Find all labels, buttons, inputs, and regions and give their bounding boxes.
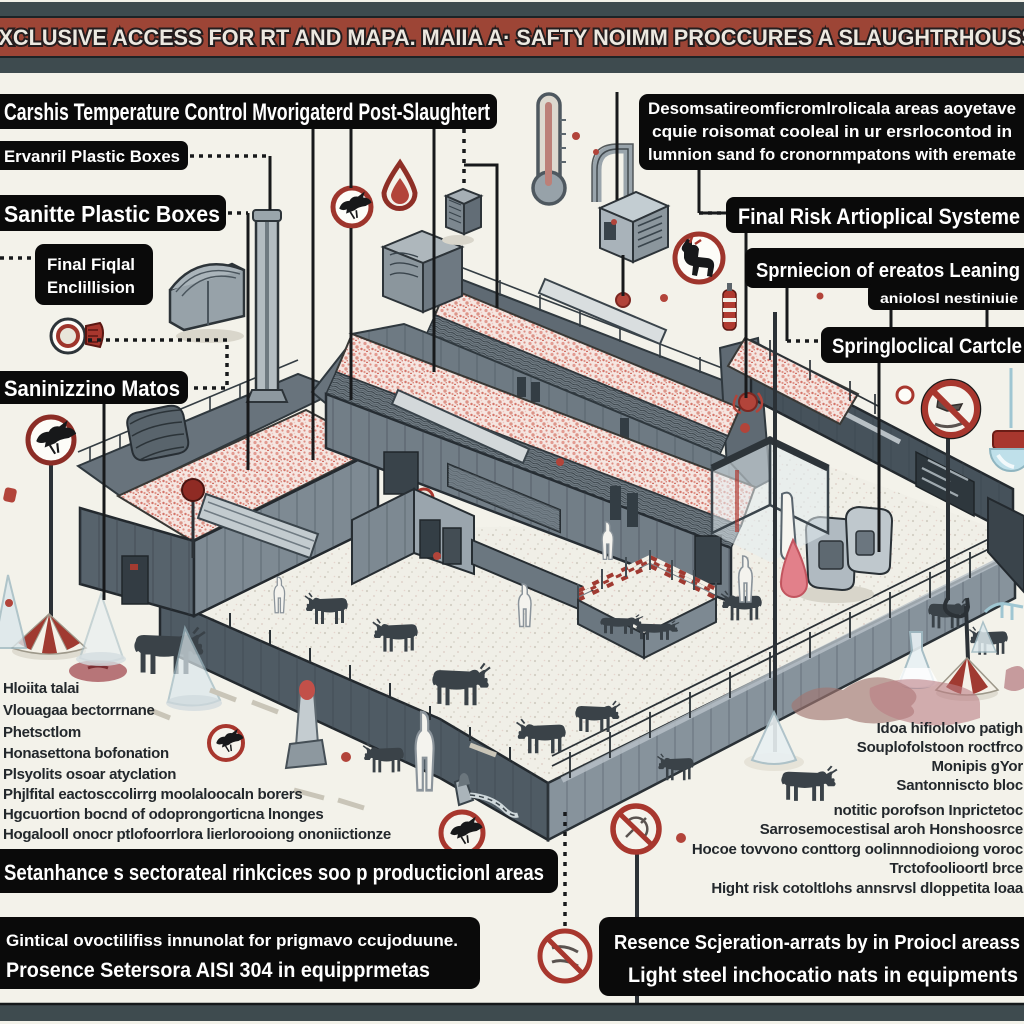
svg-text:Light steel inchocatio nats in: Light steel inchocatio nats in equipment… (628, 964, 1018, 987)
svg-text:Resence Scjeration-arrats by i: Resence Scjeration-arrats by in Proiocl … (614, 932, 1020, 954)
svg-text:Monipis gYor: Monipis gYor (932, 758, 1024, 775)
svg-text:Hogalooll onocr ptlofoorrlora: Hogalooll onocr ptlofoorrlora lierlorooi… (3, 826, 391, 843)
svg-text:Setanhance s sectorateal rinkc: Setanhance s sectorateal rinkcices soo p… (4, 860, 544, 885)
svg-text:Desomsatireomficromlrolicala a: Desomsatireomficromlrolicala areas aoyet… (648, 100, 1016, 118)
svg-text:Final Risk Artioplical Systeme: Final Risk Artioplical Systeme (738, 204, 1020, 229)
svg-text:aniolosl nestiniuie: aniolosl nestiniuie (880, 291, 1019, 306)
svg-text:Sanitte Plastic Boxes: Sanitte Plastic Boxes (4, 201, 220, 227)
svg-text:Vlouagaa bectorrnane: Vlouagaa bectorrnane (3, 702, 155, 719)
svg-text:Sprniecion of ereatos Leaning: Sprniecion of ereatos Leaning (756, 260, 1020, 282)
svg-text:Ervanril Plastic Boxes: Ervanril Plastic Boxes (4, 147, 180, 166)
svg-text:Hgcuortion bocnd of odoprongor: Hgcuortion bocnd of odoprongorticna lnon… (3, 806, 323, 823)
svg-text:Phjlfital eactosccolirrg moola: Phjlfital eactosccolirrg moolaloocaln bo… (3, 786, 302, 803)
svg-text:Final Fiqlal: Final Fiqlal (47, 255, 135, 274)
svg-text:Carshis Temperature Control Mv: Carshis Temperature Control Mvorigaterd … (4, 99, 490, 126)
svg-text:Plsyolits osoar atyclation: Plsyolits osoar atyclation (3, 766, 176, 783)
svg-text:lumnion sand fo cronornmpatons: lumnion sand fo cronornmpatons with erem… (648, 146, 1016, 164)
svg-text:Honasettona bofonation: Honasettona bofonation (3, 745, 169, 762)
svg-text:Trctofoolioortl brce: Trctofoolioortl brce (889, 860, 1023, 877)
svg-text:Hight risk cotoltlohs annsrvsl: Hight risk cotoltlohs annsrvsl dloppetit… (711, 880, 1024, 897)
svg-text:Enclillision: Enclillision (47, 278, 135, 297)
svg-text:Prosence Setersora AISI 304 in: Prosence Setersora AISI 304 in equipprme… (6, 959, 430, 982)
svg-text:Hloiita talai: Hloiita talai (3, 680, 79, 697)
svg-text:notitic porofson Inprictetoc: notitic porofson Inprictetoc (834, 802, 1023, 819)
svg-text:cquie roisomat cooleal in ur e: cquie roisomat cooleal in ur ersrloconto… (652, 123, 1012, 141)
svg-text:Springloclical Cartcle: Springloclical Cartcle (832, 335, 1022, 358)
svg-text:Souplofolstoon roctfrco: Souplofolstoon roctfrco (857, 739, 1023, 756)
svg-text:Phetsctlom: Phetsctlom (3, 724, 81, 741)
svg-text:Sarrosemocestisal aroh Honshoo: Sarrosemocestisal aroh Honshoosrce (760, 821, 1023, 838)
svg-text:Idoa hifiololvo patigh: Idoa hifiololvo patigh (877, 720, 1023, 737)
svg-text:Hocoe tovvono conttorg oolinnn: Hocoe tovvono conttorg oolinnnodioiong v… (692, 841, 1023, 858)
svg-text:Santonniscto bloc: Santonniscto bloc (896, 777, 1023, 794)
svg-text:Saninizzino Matos: Saninizzino Matos (4, 376, 180, 401)
svg-text:EXCLUSIVE ACCESS FOR RT AND M: EXCLUSIVE ACCESS FOR RT AND MAPA. MAIIA … (0, 25, 1024, 50)
svg-text:Gintical ovoctilifiss innunola: Gintical ovoctilifiss innunolat for prig… (6, 931, 458, 950)
